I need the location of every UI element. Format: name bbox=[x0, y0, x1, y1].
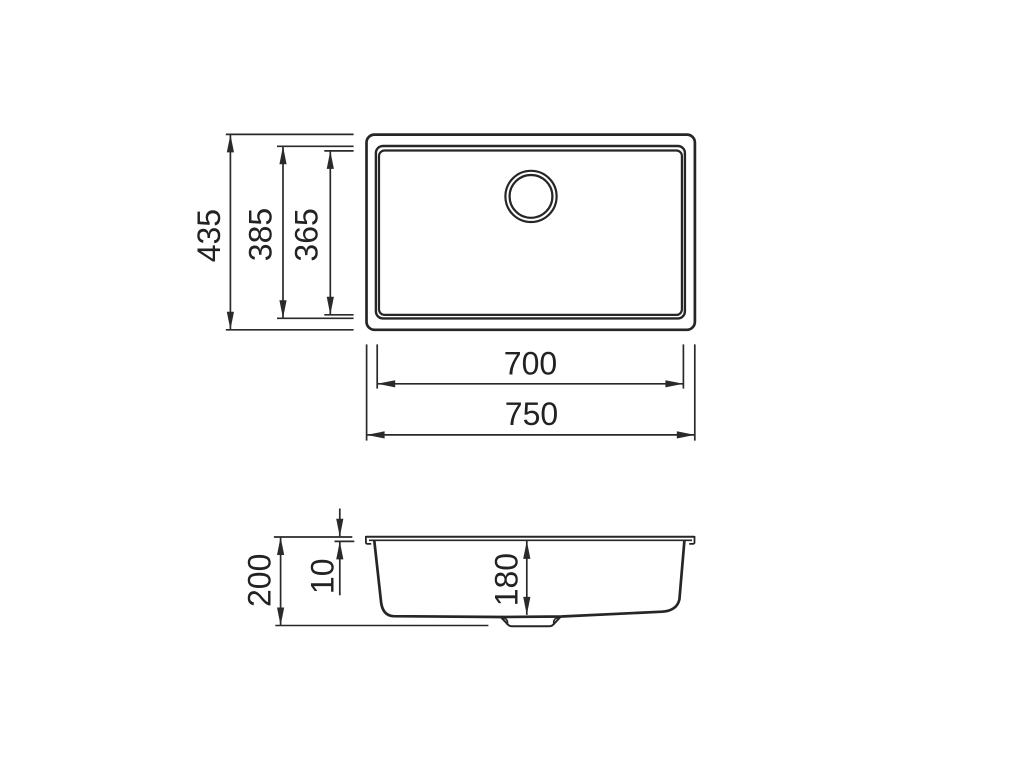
svg-text:700: 700 bbox=[504, 345, 557, 381]
svg-text:10: 10 bbox=[304, 559, 340, 595]
svg-text:750: 750 bbox=[505, 396, 558, 432]
svg-text:200: 200 bbox=[241, 554, 277, 607]
svg-text:435: 435 bbox=[191, 209, 227, 262]
svg-text:365: 365 bbox=[288, 208, 324, 261]
svg-text:385: 385 bbox=[242, 208, 278, 261]
svg-text:180: 180 bbox=[489, 553, 525, 606]
